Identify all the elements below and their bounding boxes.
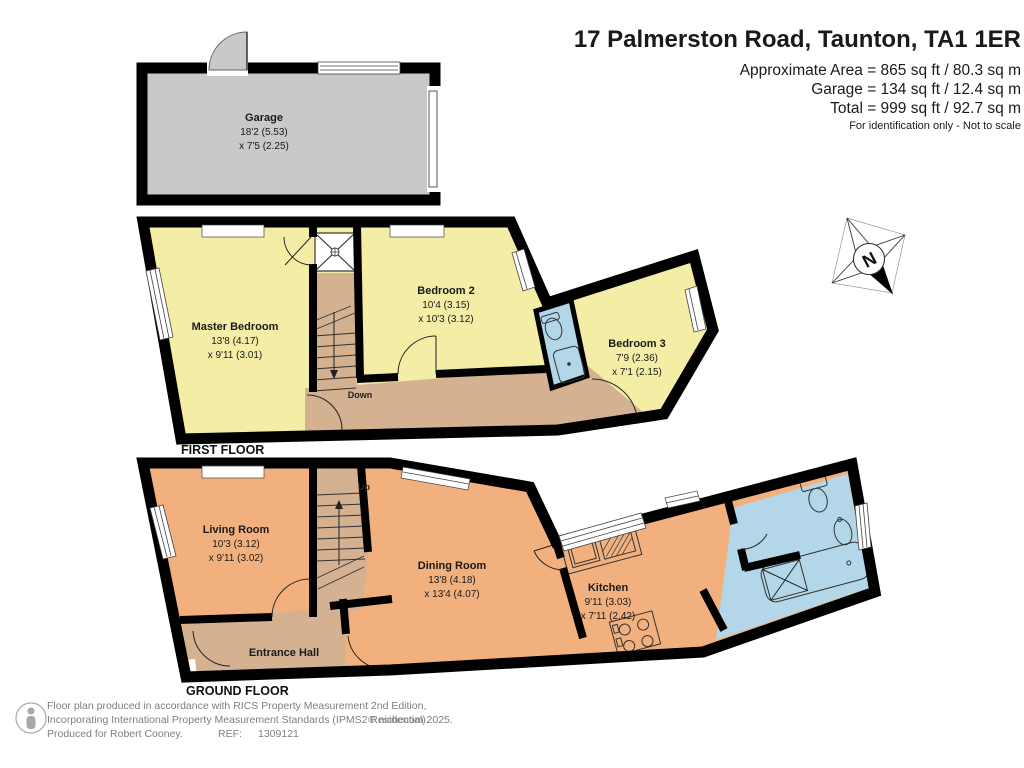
bedroom2-dim1: 10'4 (3.15) bbox=[422, 300, 470, 311]
footer-produced: Produced for Robert Cooney. bbox=[47, 728, 183, 740]
footer-ref-label: REF: bbox=[218, 728, 242, 740]
entrance-hall-name: Entrance Hall bbox=[249, 647, 319, 659]
living-dim1: 10'3 (3.12) bbox=[212, 539, 260, 550]
garage-door-swing bbox=[209, 32, 247, 70]
bedroom2-dim2: x 10'3 (3.12) bbox=[418, 314, 473, 325]
stairs-down-label: Down bbox=[348, 390, 373, 400]
bedroom2-name: Bedroom 2 bbox=[417, 285, 474, 297]
garage-window bbox=[318, 62, 400, 74]
dining-dim2: x 13'4 (4.07) bbox=[424, 589, 479, 600]
kitchen-dim2: x 7'11 (2.42) bbox=[581, 611, 636, 622]
header: 17 Palmerston Road, Taunton, TA1 1ER App… bbox=[574, 26, 1021, 132]
footer-line1: Floor plan produced in accordance with R… bbox=[47, 700, 426, 712]
garage-label: Garage 18'2 (5.53) x 7'5 (2.25) bbox=[239, 112, 289, 152]
page-title: 17 Palmerston Road, Taunton, TA1 1ER bbox=[574, 26, 1021, 53]
shower-drain-icon bbox=[567, 362, 571, 366]
bedroom3-dim2: x 7'1 (2.15) bbox=[612, 367, 662, 378]
kitchen-dim1: 9'11 (3.03) bbox=[585, 597, 632, 608]
first-floor-block: Master Bedroom 13'8 (4.17) x 9'11 (3.01)… bbox=[143, 222, 713, 457]
dining-dim1: 13'8 (4.18) bbox=[428, 575, 476, 586]
living-window bbox=[202, 466, 264, 478]
garage-floor bbox=[142, 68, 435, 200]
surveyor-icon bbox=[16, 703, 46, 733]
ground-floor-label: GROUND FLOOR bbox=[186, 684, 289, 698]
garage-dim2: x 7'5 (2.25) bbox=[239, 141, 289, 152]
living-name: Living Room bbox=[203, 524, 270, 536]
master-dim2: x 9'11 (3.01) bbox=[208, 350, 263, 361]
footer: Floor plan produced in accordance with R… bbox=[16, 700, 453, 740]
ground-floor-block: Living Room 10'3 (3.12) x 9'11 (3.02) Di… bbox=[143, 463, 875, 698]
skylight-icon bbox=[315, 233, 355, 271]
kitchen-name: Kitchen bbox=[588, 582, 629, 594]
first-floor-label: FIRST FLOOR bbox=[181, 443, 264, 457]
living-dim2: x 9'11 (3.02) bbox=[209, 553, 264, 564]
disclaimer-text: For identification only - Not to scale bbox=[849, 120, 1021, 132]
bedroom2-window bbox=[390, 225, 444, 237]
garage-block: Garage 18'2 (5.53) x 7'5 (2.25) bbox=[142, 32, 441, 200]
garage-name: Garage bbox=[245, 112, 283, 124]
garage-vehicle-door bbox=[427, 86, 441, 192]
total-area-text: Total = 999 sq ft / 92.7 sq m bbox=[830, 100, 1021, 117]
garage-dim1: 18'2 (5.53) bbox=[240, 127, 288, 138]
footer-ref-number: 1309121 bbox=[258, 728, 299, 740]
bedroom3-name: Bedroom 3 bbox=[608, 338, 665, 350]
stairs-up-label: Up bbox=[358, 482, 370, 492]
compass-icon: N bbox=[832, 218, 905, 293]
bedroom3-dim1: 7'9 (2.36) bbox=[616, 353, 658, 364]
approx-area-text: Approximate Area = 865 sq ft / 80.3 sq m bbox=[740, 62, 1021, 79]
floorplan-canvas: 17 Palmerston Road, Taunton, TA1 1ER App… bbox=[0, 0, 1024, 768]
footer-copyright: © nichecom 2025. bbox=[368, 714, 453, 726]
dining-name: Dining Room bbox=[418, 560, 487, 572]
master-window bbox=[202, 225, 264, 237]
master-name: Master Bedroom bbox=[192, 321, 279, 333]
garage-area-text: Garage = 134 sq ft / 12.4 sq m bbox=[811, 81, 1021, 98]
master-dim1: 13'8 (4.17) bbox=[211, 336, 259, 347]
